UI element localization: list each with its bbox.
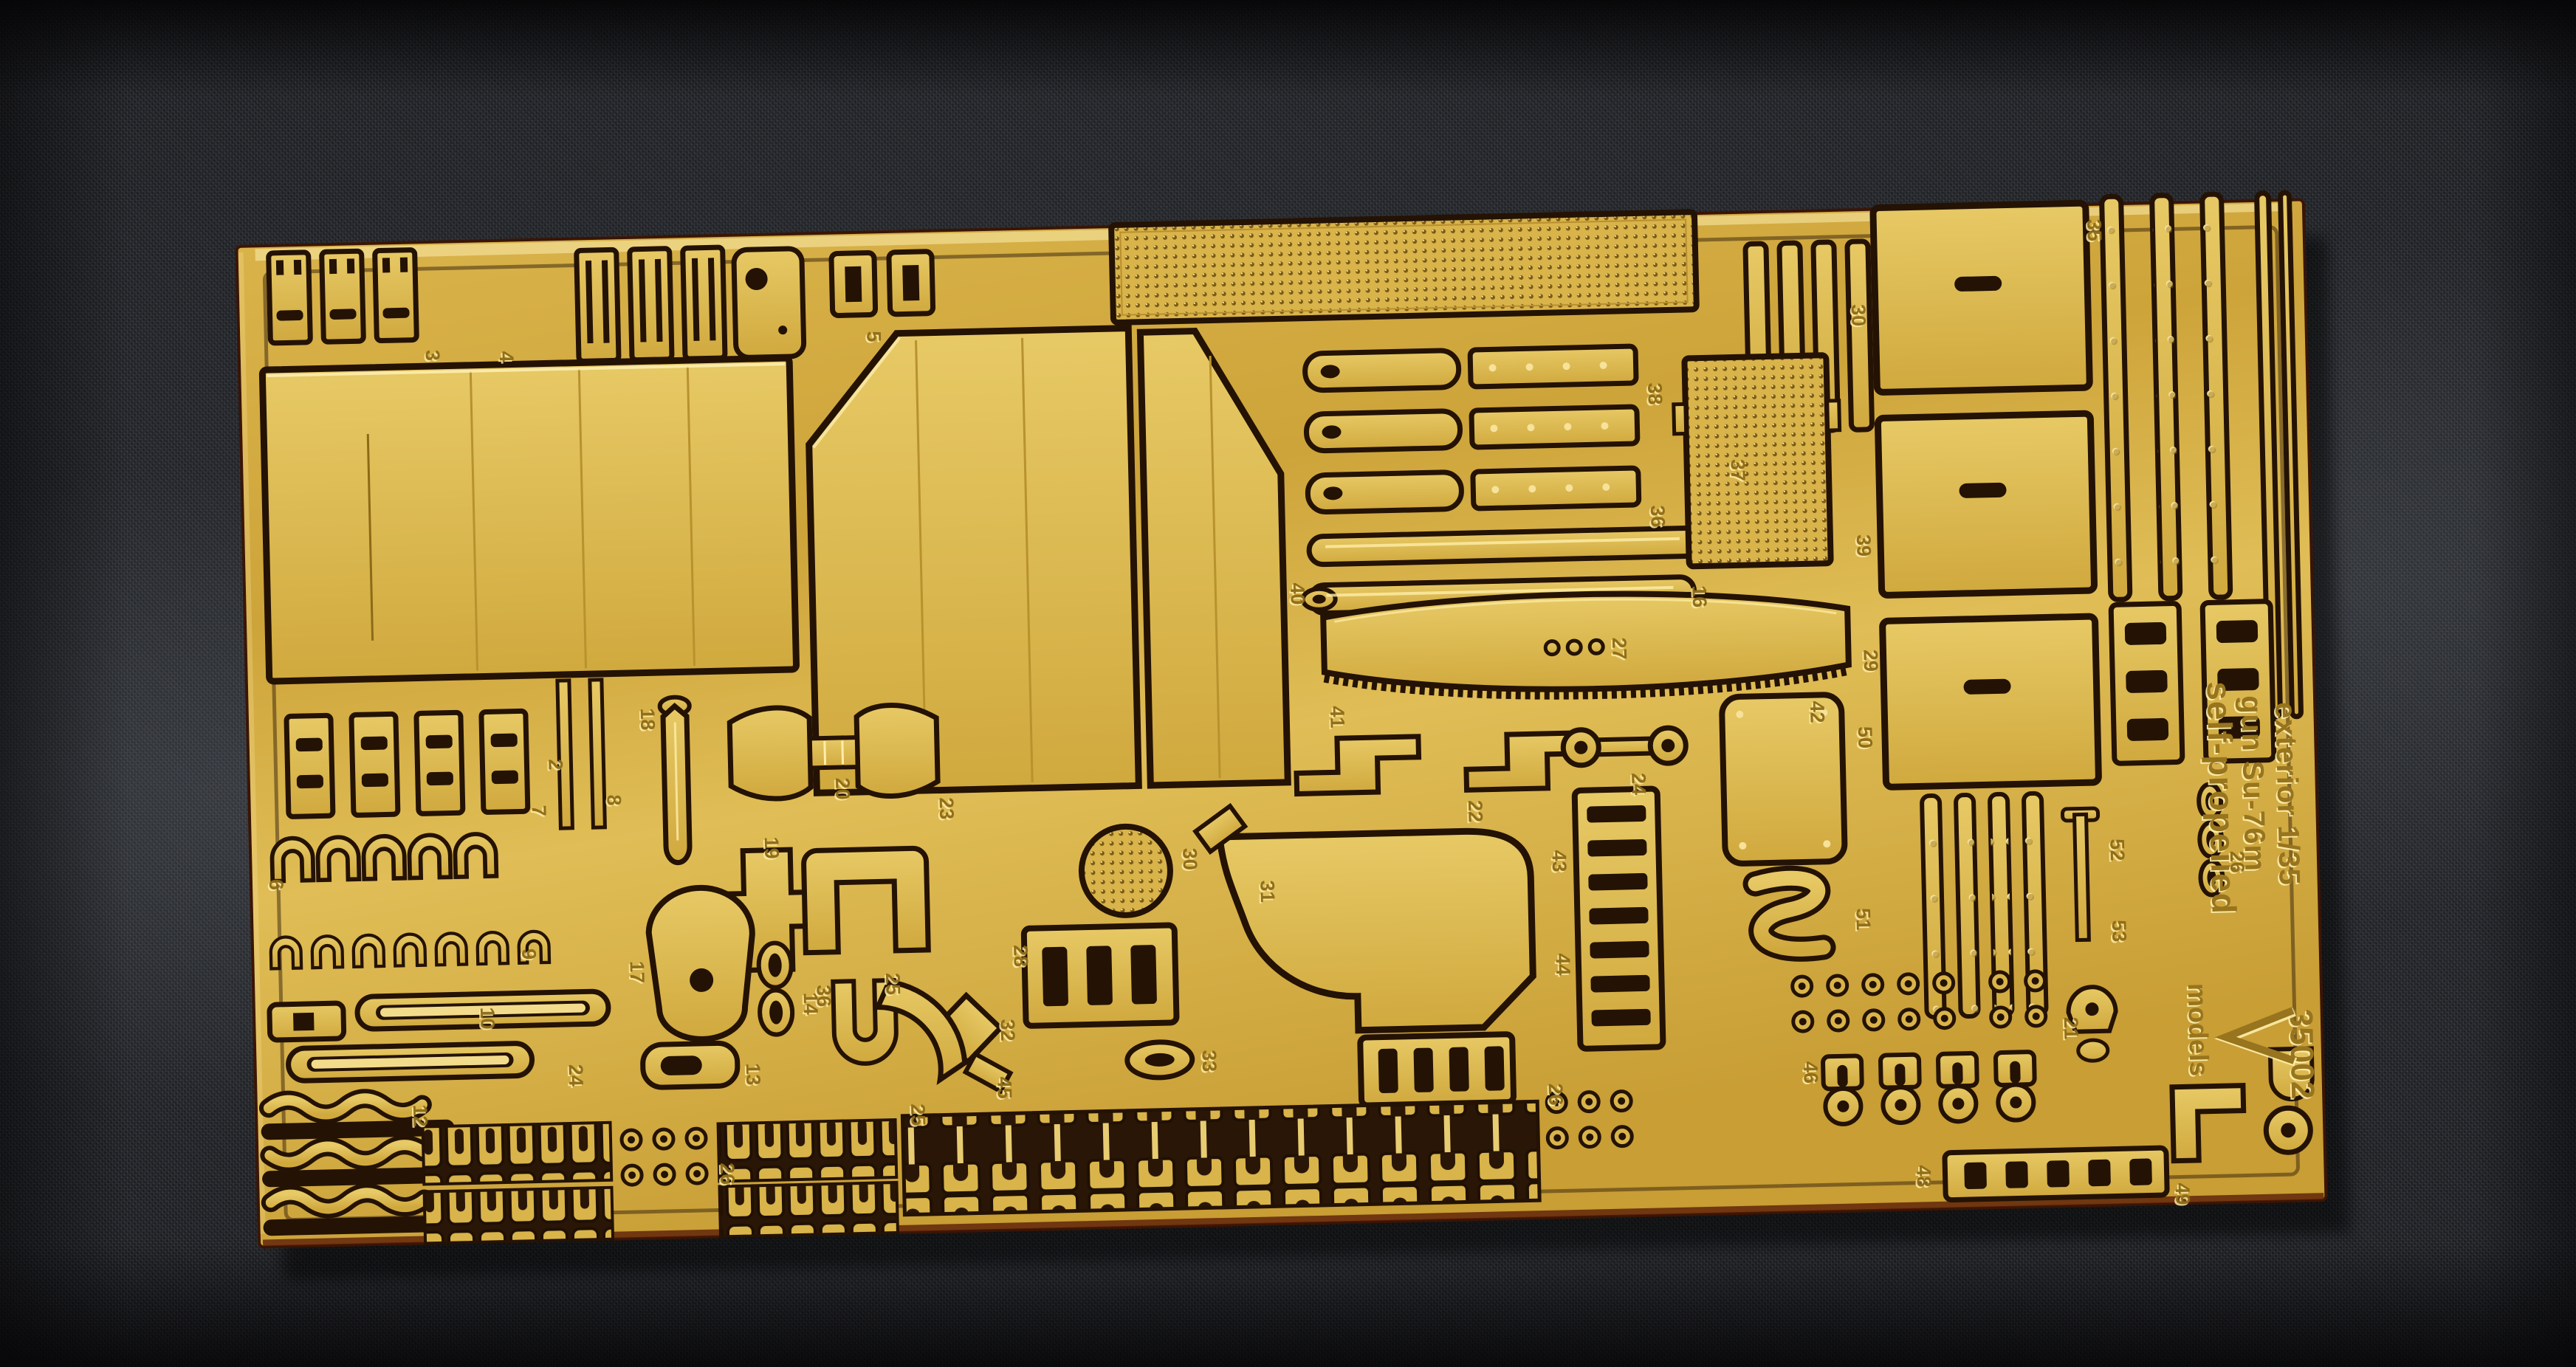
photo-vignette bbox=[0, 0, 2576, 1367]
photograph: self-propelled self-propelled gun Su-76m… bbox=[0, 0, 2576, 1367]
